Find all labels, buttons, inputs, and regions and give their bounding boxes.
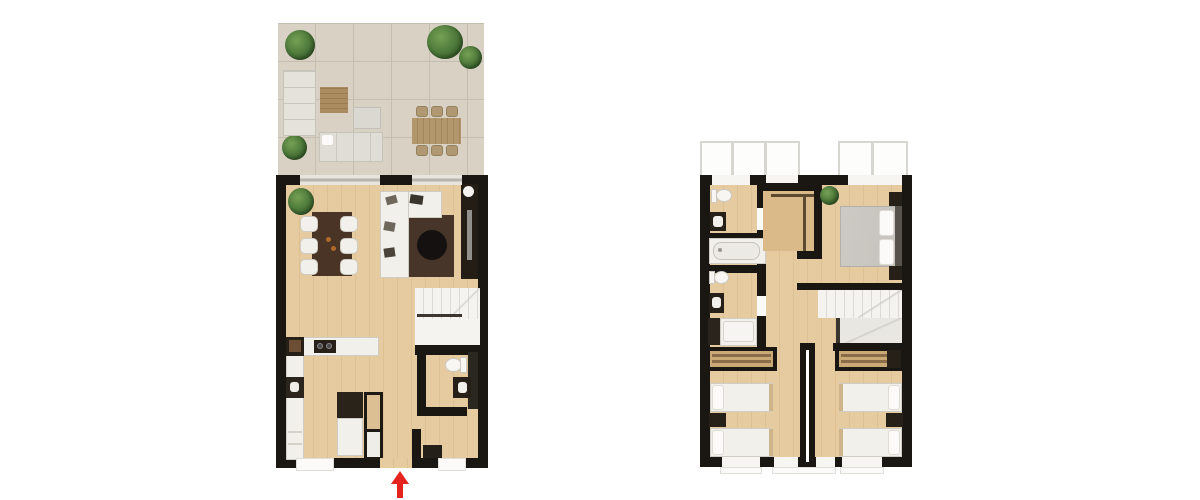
- fridge-interior: [289, 340, 301, 352]
- outdoor-coffee-table: [320, 87, 348, 113]
- outdoor-chair: [431, 145, 443, 156]
- outdoor-chair: [431, 106, 443, 117]
- shower-pan-inner: [723, 321, 754, 342]
- terrace-window: [412, 175, 462, 185]
- kitchen-sink-bowl: [290, 382, 299, 392]
- tv-speaker: [463, 186, 474, 197]
- tv-screen: [467, 210, 472, 260]
- nightstand: [889, 266, 902, 280]
- island-cooktop: [337, 392, 363, 418]
- bed-headboard: [895, 206, 902, 267]
- window-sill: [720, 467, 762, 474]
- kitchen-island: [337, 418, 363, 456]
- outdoor-corner-sofa: [283, 70, 316, 136]
- bed-footboard: [769, 384, 773, 411]
- wardrobe-box: [887, 350, 901, 368]
- terrace-sliding-door: [300, 175, 380, 185]
- tall-cabinet-shelf: [367, 395, 380, 429]
- bathroom-wall-left: [417, 345, 426, 416]
- bed-pillow: [712, 385, 724, 410]
- entrance-opening: [380, 458, 412, 468]
- table-dish: [331, 246, 336, 251]
- floor-plans-canvas: [0, 0, 1200, 500]
- bed-pillow: [712, 430, 724, 455]
- window-opening: [842, 457, 882, 467]
- dining-chair: [300, 238, 318, 254]
- outdoor-cushion: [321, 134, 334, 146]
- stairs-wall-top: [797, 283, 902, 290]
- plant-icon: [459, 46, 482, 69]
- closet-rail: [771, 194, 814, 197]
- sofa-cushion: [383, 221, 395, 232]
- window-sill: [296, 458, 334, 471]
- window-sill: [772, 467, 836, 474]
- dining-chair: [300, 216, 318, 232]
- sofa-left-section: [380, 191, 409, 278]
- bed-footboard: [839, 384, 843, 411]
- sofa-cushion: [409, 194, 423, 205]
- sofa-cushion: [383, 247, 395, 257]
- tall-cabinet-front: [367, 432, 380, 457]
- shower-frame: [708, 318, 720, 345]
- nightstand: [709, 413, 726, 427]
- nightstand: [886, 413, 903, 427]
- dining-chair: [340, 216, 358, 232]
- closet-interior: [763, 191, 814, 251]
- bed-pillow: [888, 385, 900, 410]
- outdoor-ottoman: [353, 107, 381, 129]
- table-dish: [326, 237, 331, 242]
- bed-footboard: [839, 429, 843, 456]
- window-mullion: [764, 141, 767, 176]
- entry-wall-stub: [412, 429, 421, 459]
- bed-pillow: [879, 239, 894, 265]
- window-opening: [848, 175, 902, 185]
- balcony-window: [700, 141, 800, 176]
- bathroom-wall-bottom: [417, 407, 467, 416]
- window-mullion: [731, 141, 734, 176]
- plant-icon: [427, 25, 463, 59]
- round-coffee-table: [417, 230, 447, 260]
- window-sill: [840, 467, 884, 474]
- stairs-rail: [417, 314, 462, 317]
- toilet-icon: [716, 189, 732, 202]
- closet-rail: [803, 194, 806, 251]
- dining-chair: [340, 259, 358, 275]
- stairs-winder: [858, 290, 902, 318]
- window-sill: [438, 458, 466, 471]
- bathroom2-sink-bowl: [712, 297, 721, 308]
- plant-icon: [282, 135, 307, 160]
- stairs-lower-winder: [842, 318, 902, 345]
- bed-footboard: [769, 429, 773, 456]
- window-opening: [712, 175, 750, 185]
- plant-icon: [285, 30, 315, 60]
- wardrobe-rail: [712, 354, 771, 357]
- outdoor-chair: [416, 106, 428, 117]
- bed-pillow: [879, 210, 894, 236]
- nightstand: [889, 192, 902, 206]
- toilet-tank: [460, 357, 467, 373]
- toilet-icon: [714, 271, 729, 284]
- entrance-arrow-head: [391, 471, 409, 484]
- cooktop-burner: [317, 343, 323, 349]
- drawer-line: [288, 443, 302, 445]
- stairs-landing: [415, 319, 480, 345]
- entry-bench: [423, 445, 442, 458]
- window-opening: [722, 457, 760, 467]
- bathroom-sink-bowl: [458, 382, 467, 393]
- bed-pillow: [888, 430, 900, 455]
- window-opening: [774, 457, 798, 467]
- wc-sink-bowl: [713, 216, 723, 227]
- dining-chair: [340, 238, 358, 254]
- closet-wall-cap: [797, 251, 822, 259]
- plant-icon: [820, 186, 839, 205]
- entrance-arrow-stem: [397, 484, 403, 498]
- stairs-rail: [836, 318, 840, 345]
- outdoor-chair: [446, 106, 458, 117]
- outdoor-chair: [416, 145, 428, 156]
- wardrobe-rail: [712, 360, 771, 363]
- window-mullion: [871, 141, 874, 176]
- stairs-winder: [452, 288, 480, 316]
- bathtub-drain: [718, 248, 722, 252]
- cooktop-burner: [326, 343, 332, 349]
- outdoor-dining-table: [412, 118, 461, 144]
- outdoor-chair: [446, 145, 458, 156]
- window-opening: [816, 457, 835, 467]
- plant-icon: [288, 188, 314, 215]
- door-leaf: [757, 296, 766, 316]
- drawer-line: [288, 431, 302, 433]
- divider-gap: [806, 350, 809, 462]
- dining-chair: [300, 259, 318, 275]
